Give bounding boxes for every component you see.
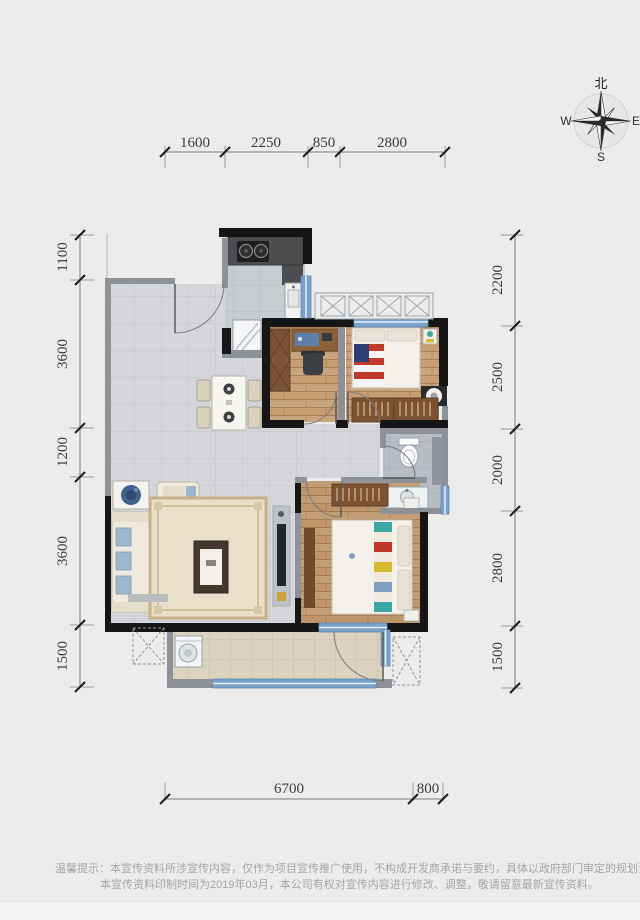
floor-plan xyxy=(105,228,449,688)
dimension-right: 2200 2500 2000 2800 1500 xyxy=(490,230,523,693)
tv-stand-icon xyxy=(273,506,290,606)
dim-right-5: 1500 xyxy=(490,642,506,672)
master-bed-icon xyxy=(332,520,412,614)
bathroom-window xyxy=(441,486,449,514)
compass-rose-icon: 北 W E S xyxy=(560,76,640,164)
dim-left-4: 3600 xyxy=(55,536,71,566)
dim-right-4: 2800 xyxy=(490,553,506,583)
dimension-left: 1100 3600 1200 3600 1500 xyxy=(55,230,94,692)
dim-bottom-1: 6700 xyxy=(274,781,304,797)
stove-icon xyxy=(237,241,269,262)
balcony-floor xyxy=(171,630,383,681)
striped-blanket-icon xyxy=(374,522,392,612)
floorplan-canvas: 1600 2250 850 2800 6700 800 1100 3600 xyxy=(0,0,640,920)
dim-right-2: 2500 xyxy=(490,362,506,392)
dim-right-1: 2200 xyxy=(490,265,506,295)
dim-top-1: 1600 xyxy=(180,135,210,151)
tv-icon xyxy=(277,524,286,586)
bed2-icon xyxy=(352,328,420,388)
flag-blanket-icon xyxy=(354,344,384,386)
bed2-wardrobe-icon xyxy=(352,398,438,422)
disclaimer-line-2: 本宣传资料印制时间为2019年03月，本公司有权对宣传内容进行修改、调整，敬请留… xyxy=(100,877,599,893)
disclaimer-line-1: 温馨提示：本宣传资料所涉宣传内容，仅作为项目宣传推广使用，不构成开发商承诺与要约… xyxy=(55,861,640,877)
dim-left-3: 1200 xyxy=(55,437,71,467)
footer-strip xyxy=(0,903,640,920)
floorplan-page: 1600 2250 850 2800 6700 800 1100 3600 xyxy=(0,0,640,920)
washing-machine-icon xyxy=(175,636,202,667)
compass-south-label: S xyxy=(597,150,605,164)
master-tv-cabinet-icon xyxy=(304,528,315,608)
dim-left-2: 3600 xyxy=(55,339,71,369)
desk-chair-icon xyxy=(301,351,325,375)
dimension-bottom: 6700 800 xyxy=(160,781,448,804)
ac-platform-right xyxy=(393,637,420,685)
kitchen-window xyxy=(301,276,311,318)
fridge-icon xyxy=(233,320,261,352)
coffee-table-icon xyxy=(194,541,228,593)
dim-bottom-2: 800 xyxy=(417,781,440,797)
hallway-floor xyxy=(111,424,380,478)
dimension-top: 1600 2250 850 2800 xyxy=(160,135,450,168)
dim-top-4: 2800 xyxy=(377,135,407,151)
dim-left-1: 1100 xyxy=(55,242,71,271)
dim-right-3: 2000 xyxy=(490,455,506,485)
kitchen-sink-icon xyxy=(285,283,302,321)
dim-top-2: 2250 xyxy=(251,135,281,151)
ac-platform-top xyxy=(315,293,433,319)
shower-ledge xyxy=(432,437,443,485)
bed2-nightstand-icon xyxy=(423,329,437,344)
compass-west-label: W xyxy=(560,114,572,128)
master-window-door xyxy=(319,623,387,632)
balcony-railing-window xyxy=(213,679,376,688)
compass-east-label: E xyxy=(632,114,640,128)
ac-platform-left xyxy=(133,628,164,664)
study-wardrobe-icon xyxy=(270,329,290,391)
dim-top-3: 850 xyxy=(313,135,336,151)
dining-table-icon xyxy=(212,376,246,430)
desk-icon xyxy=(292,329,338,351)
dim-left-5: 1500 xyxy=(55,641,71,671)
compass-north-label: 北 xyxy=(594,76,607,91)
plant-table-icon xyxy=(113,481,149,509)
